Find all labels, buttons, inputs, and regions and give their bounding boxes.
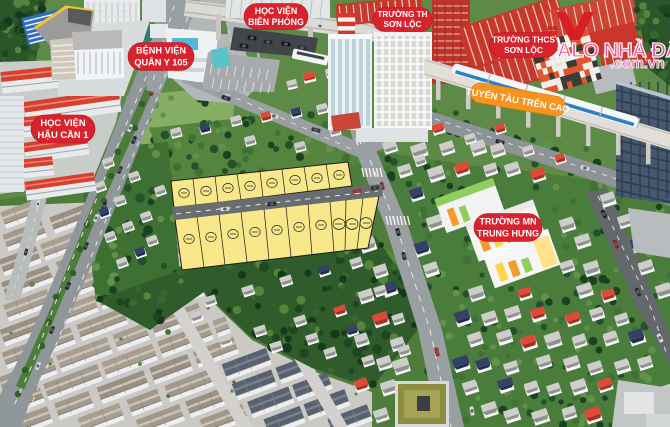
svg-text:SƠN LỘC: SƠN LỘC — [504, 44, 543, 55]
svg-text:HỌC VIỆN: HỌC VIỆN — [40, 117, 86, 128]
svg-text:TRUNG HƯNG: TRUNG HƯNG — [477, 229, 539, 239]
svg-text:TRƯỜNG TH: TRƯỜNG TH — [377, 8, 427, 19]
svg-text:SƠN LỘC: SƠN LỘC — [384, 18, 422, 29]
svg-text:BIÊN PHÒNG: BIÊN PHÒNG — [248, 16, 304, 27]
svg-text:HỌC VIỆN: HỌC VIỆN — [255, 5, 298, 16]
svg-text:BỆNH VIỆN: BỆNH VIỆN — [136, 45, 186, 56]
svg-text:QUÂN Y 105: QUÂN Y 105 — [134, 57, 187, 68]
svg-text:TRƯỜNG THCS: TRƯỜNG THCS — [492, 34, 555, 45]
svg-text:TRƯỜNG MN: TRƯỜNG MN — [479, 216, 536, 227]
svg-text:.com.vn: .com.vn — [610, 56, 665, 72]
svg-text:HẬU CẦN 1: HẬU CẦN 1 — [37, 129, 88, 140]
